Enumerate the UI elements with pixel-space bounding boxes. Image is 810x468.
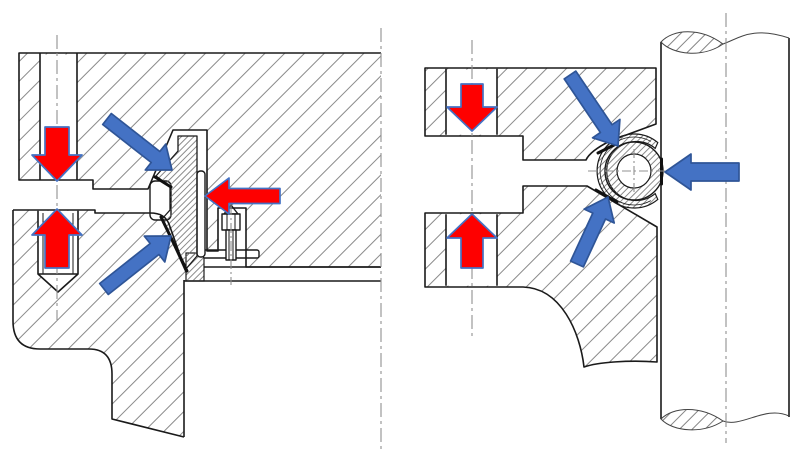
shaft bbox=[661, 32, 789, 430]
technical-drawing bbox=[0, 0, 810, 468]
retainer-strip bbox=[197, 171, 205, 257]
technical-drawing-canvas bbox=[0, 0, 810, 468]
vessel-rim bbox=[184, 267, 381, 281]
